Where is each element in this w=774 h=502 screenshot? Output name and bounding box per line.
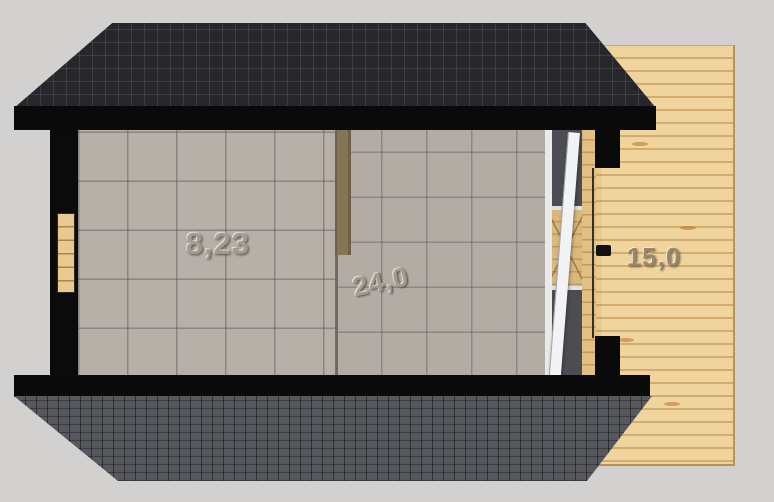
floor-plan-render: 8,23 24,0 15,0 [0, 0, 774, 502]
partition-floor-joint [335, 255, 338, 378]
door-handle [596, 245, 611, 256]
wood-knot [632, 142, 648, 146]
roof-slope-bottom [14, 396, 652, 481]
area-label-terrace: 15,0 [616, 242, 692, 273]
roof-slope-top [14, 23, 656, 108]
wood-knot [680, 226, 696, 230]
left-wall-window [57, 213, 75, 293]
area-label-room-left: 8,23 [170, 226, 266, 262]
wood-knot [664, 402, 680, 406]
roof-eave-top [14, 106, 656, 130]
partition-wall [335, 128, 351, 255]
room-right-floor [336, 128, 546, 378]
door-track [592, 168, 594, 338]
wood-knot [618, 338, 634, 342]
roof-eave-bottom [14, 375, 650, 397]
